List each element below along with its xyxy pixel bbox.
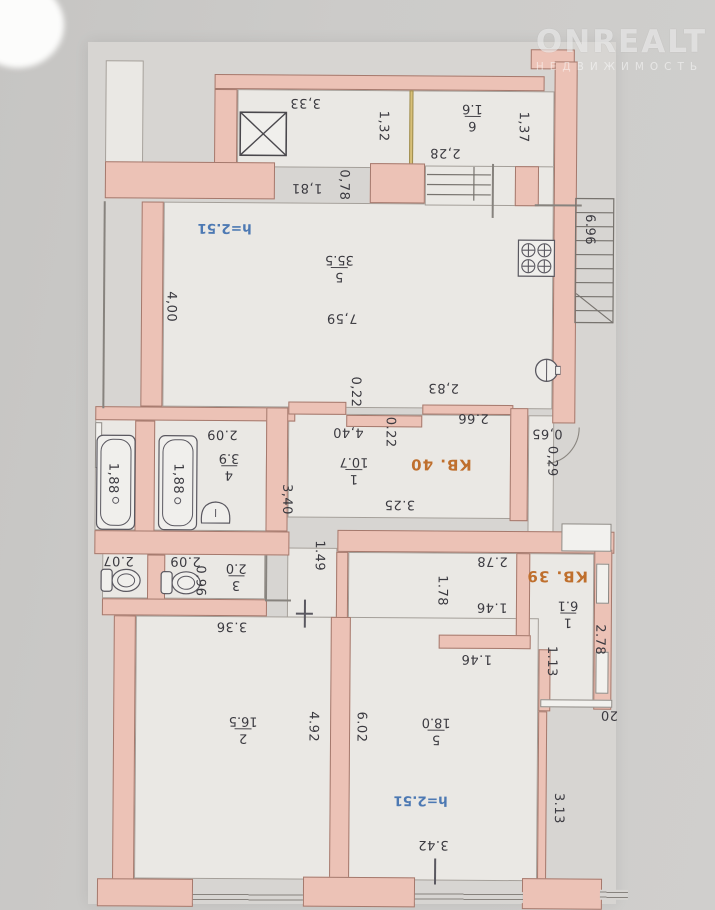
- wall-segment: [112, 615, 136, 881]
- ceiling-height-label: h=2.51: [393, 792, 447, 808]
- thin-wall-line: [267, 599, 291, 601]
- dim-label: 2,28: [430, 145, 461, 160]
- kitchen-sink-icon: [534, 355, 560, 385]
- dim-label: 1,88: [170, 463, 185, 494]
- dim-label: 0,29: [544, 446, 559, 477]
- room-area: 16.5: [229, 714, 258, 729]
- dim-label: 6.96: [582, 214, 597, 245]
- dim-label: 1.46: [461, 651, 492, 666]
- dim-label: 1.78: [434, 575, 449, 606]
- wall-segment: [303, 877, 415, 908]
- wall-segment: [102, 598, 267, 616]
- wall-segment: [439, 635, 531, 650]
- gas-stove-icon: [517, 239, 555, 277]
- room-label-2: 2 16.5: [229, 714, 258, 744]
- ventilation-shaft-icon: [239, 111, 287, 156]
- room-number: 2: [235, 729, 251, 745]
- wall-segment: [288, 402, 346, 415]
- dim-label: 3.36: [216, 619, 247, 634]
- dim-label: 1,81: [291, 180, 322, 195]
- dim-label: 3.25: [384, 497, 415, 512]
- room-area: 6.1: [558, 598, 579, 613]
- dim-label: 2.66: [458, 410, 489, 425]
- entry-steps-icon: [427, 166, 493, 200]
- wall-segment: [522, 878, 602, 910]
- wall-segment: [329, 617, 351, 883]
- room-number: 5: [331, 267, 347, 283]
- dim-label: 3.13: [551, 793, 566, 824]
- wall-segment: [97, 878, 193, 907]
- dim-label: 0.96: [193, 565, 208, 596]
- dim-label: 0,65: [532, 426, 563, 441]
- dim-label: 0.22: [383, 417, 398, 448]
- dim-label: 1,37: [516, 112, 531, 143]
- dim-label: 2.78: [592, 624, 607, 655]
- room-label-5-bottom: 5 18.0: [421, 715, 450, 745]
- room-area: 10.7: [339, 455, 368, 470]
- dim-label: 1,88: [105, 463, 120, 494]
- apartment-label-kv40: КВ. 40: [410, 455, 472, 473]
- room-area: 2.0: [226, 561, 247, 576]
- room-floor-left-strip: [105, 60, 144, 166]
- thin-wall-line: [265, 555, 267, 601]
- balcony-railing: [193, 892, 303, 904]
- wall-segment: [516, 553, 531, 639]
- dim-label: 4.92: [305, 711, 320, 742]
- dim-tick: [296, 613, 313, 615]
- room-label-3: 3 2.0: [226, 561, 247, 591]
- dim-label: 2,83: [428, 380, 459, 395]
- dim-label: 4,00: [163, 291, 178, 322]
- room-area: 18.0: [422, 715, 451, 730]
- dim-label: 7,59: [326, 310, 357, 325]
- room-label-4: 4 3.9: [218, 451, 239, 481]
- room-number: 5: [428, 730, 444, 746]
- room-label-1-kv40: 1 10.7: [339, 455, 368, 485]
- dim-label: 6.02: [353, 712, 368, 743]
- wall-segment: [510, 408, 529, 521]
- wall-segment: [105, 161, 275, 199]
- wall-segment: [140, 201, 163, 406]
- room-number: 3: [228, 576, 244, 592]
- dim-label: 2.09: [207, 426, 238, 441]
- room-number: 1: [560, 613, 576, 629]
- floorplan: 3,33 1,32 2,28 1,37 1,81 0,78 6.96 4,00 …: [0, 0, 715, 910]
- dim-label: 0,22: [348, 376, 363, 407]
- ceiling-height-label: h=2.51: [197, 220, 251, 236]
- wall-segment: [94, 530, 289, 555]
- room-label-5-top: 5 35.5: [325, 253, 354, 283]
- balcony-railing: [600, 890, 628, 900]
- wall-segment: [134, 420, 155, 540]
- room-number: 4: [221, 466, 237, 482]
- window: [596, 564, 609, 604]
- dim-tick: [434, 859, 436, 885]
- apartment-label-kv39: КВ. 39: [526, 567, 588, 585]
- wall-segment: [215, 74, 545, 91]
- dim-label: 4,40: [333, 424, 364, 439]
- balcony-railing: [415, 891, 523, 903]
- room-label-1-kv39: 1 6.1: [557, 598, 578, 628]
- wall-segment: [214, 89, 238, 167]
- floorplan-photo: 3,33 1,32 2,28 1,37 1,81 0,78 6.96 4,00 …: [0, 0, 715, 910]
- dim-label: 1.13: [544, 646, 559, 677]
- wall-segment: [537, 711, 547, 881]
- dim-label: 1.46: [476, 599, 507, 614]
- room-area: 1.6: [462, 102, 483, 117]
- thin-wall-line: [102, 201, 105, 408]
- room-area: 35.5: [325, 253, 354, 268]
- wash-basin-icon: [197, 497, 235, 525]
- dim-label: 20: [600, 707, 618, 722]
- room-label-6: 6 1.6: [462, 102, 483, 132]
- dim-label: 2.78: [477, 553, 508, 568]
- door-frame: [409, 90, 414, 168]
- wall-segment: [370, 163, 425, 203]
- room-area: 3.9: [219, 451, 240, 466]
- entrance-door-opening: [561, 523, 611, 551]
- dim-label: 2.07: [103, 553, 134, 568]
- dim-label: 1.49: [312, 540, 327, 571]
- room-number: 6: [464, 116, 480, 132]
- toilet-icon: [100, 563, 142, 597]
- dim-label: 0,78: [336, 169, 351, 200]
- dim-label: 1,32: [376, 111, 391, 142]
- dim-label: 3,40: [279, 484, 294, 515]
- window: [595, 652, 608, 694]
- dim-label: 3,33: [290, 95, 321, 110]
- wall-segment: [515, 166, 539, 206]
- dim-label: 3.42: [418, 837, 449, 852]
- room-number: 1: [346, 469, 362, 485]
